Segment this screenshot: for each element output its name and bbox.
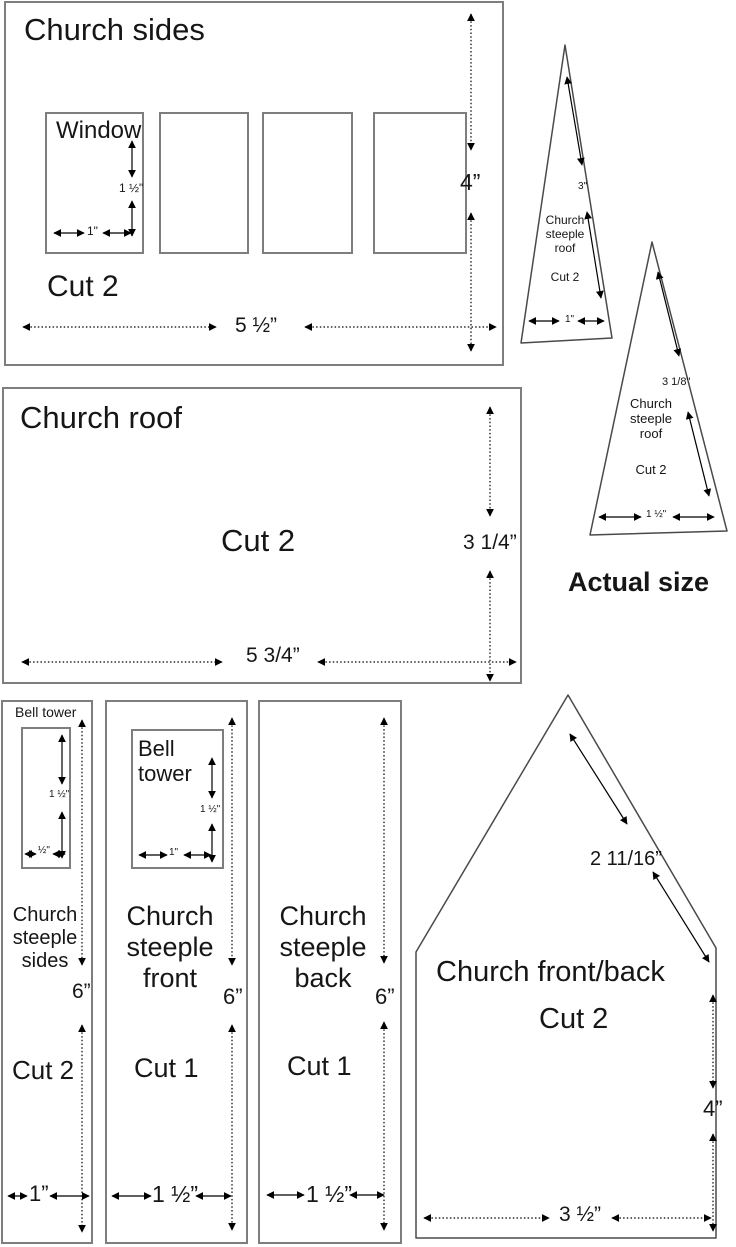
window-height-label: 1 ½"	[119, 182, 143, 196]
steeple-roof-right-slant-dim	[688, 412, 709, 496]
church-sides-height-label: 4”	[460, 169, 480, 195]
steeple-front-bell-label: Bell tower	[138, 736, 192, 787]
steeple-roof-left-outline	[521, 45, 612, 343]
steeple-sides-name: Church steeple sides	[2, 904, 88, 973]
steeple-front-width-label: 1 ½”	[152, 1181, 198, 1207]
window-2-outline	[160, 113, 248, 253]
steeple-sides-bell-width-label: ½"	[38, 845, 50, 857]
steeple-front-name: Church steeple front	[107, 901, 233, 994]
church-roof-width-label: 5 3/4”	[246, 644, 300, 668]
church-roof-cut-label: Cut 2	[221, 523, 295, 559]
front-back-name: Church front/back	[436, 956, 665, 989]
pattern-linework	[0, 0, 736, 1247]
steeple-front-height-label: 6”	[223, 984, 243, 1009]
steeple-sides-height-label: 6”	[72, 980, 91, 1004]
steeple-roof-right-slant-label: 3 1/8"	[662, 376, 690, 389]
steeple-back-name: Church steeple back	[260, 901, 386, 994]
steeple-roof-right-slant-dim	[658, 272, 679, 356]
actual-size-note: Actual size	[568, 567, 709, 598]
steeple-front-cut-label: Cut 1	[134, 1053, 199, 1084]
steeple-roof-right-outline	[590, 242, 727, 535]
church-roof-title: Church roof	[20, 400, 182, 436]
church-sides-cut-label: Cut 2	[47, 270, 119, 305]
church-roof-height-label: 3 1/4”	[463, 531, 517, 555]
front-back-slant-dim	[653, 872, 709, 962]
steeple-sides-width-label: 1”	[29, 1181, 49, 1206]
steeple-sides-bell-height-label: 1 ½"	[49, 789, 69, 801]
steeple-roof-left-name: Church steeple roof	[528, 214, 602, 255]
front-back-width-label: 3 ½”	[559, 1203, 601, 1227]
steeple-back-height-label: 6”	[375, 984, 395, 1009]
steeple-roof-right-base-label: 1 ½"	[646, 509, 666, 521]
steeple-roof-left-slant-dim	[567, 77, 582, 165]
steeple-sides-bell-label: Bell tower	[15, 704, 76, 720]
front-back-cut-label: Cut 2	[539, 1003, 608, 1036]
church-sides-outline	[5, 2, 503, 365]
steeple-back-width-label: 1 ½”	[306, 1181, 352, 1207]
front-back-slant-label: 2 11/16”	[590, 848, 662, 871]
steeple-sides-cut-label: Cut 2	[12, 1056, 74, 1086]
steeple-front-bell-width-label: 1"	[169, 847, 178, 859]
steeple-roof-right-name: Church steeple roof	[614, 397, 688, 442]
church-sides-width-label: 5 ½”	[235, 314, 277, 338]
steeple-back-cut-label: Cut 1	[287, 1051, 352, 1082]
church-sides-title: Church sides	[24, 12, 205, 48]
window-label: Window	[56, 117, 141, 145]
window-3-outline	[263, 113, 352, 253]
front-back-height-label: 4”	[703, 1096, 723, 1121]
steeple-roof-left-base-label: 1"	[565, 314, 574, 326]
window-4-outline	[374, 113, 466, 253]
steeple-front-bell-height-label: 1 ½"	[200, 804, 220, 816]
pattern-sheet: Church sides Window 1 ½" 1" Cut 2 5 ½” 4…	[0, 0, 736, 1247]
steeple-roof-right-cut-label: Cut 2	[614, 463, 688, 478]
steeple-roof-left-slant-label: 3"	[578, 181, 587, 193]
window-width-label: 1"	[87, 225, 98, 239]
steeple-roof-left-cut-label: Cut 2	[528, 271, 602, 285]
